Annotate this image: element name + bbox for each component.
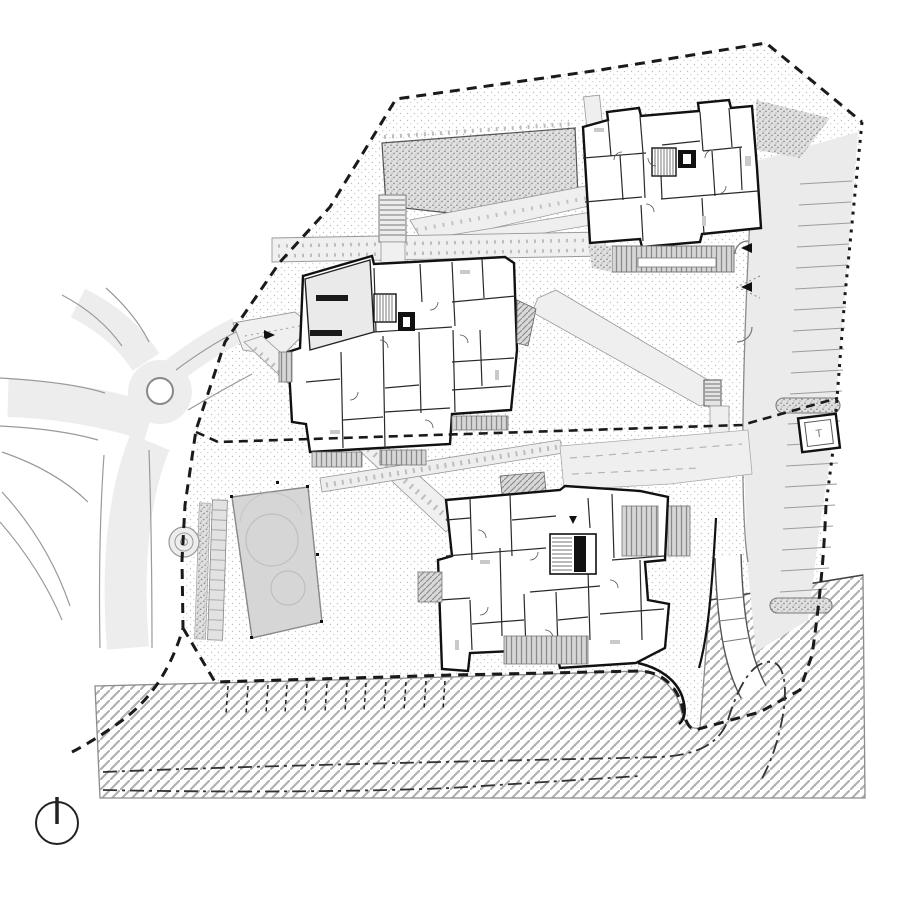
stair-core-middle: [374, 294, 396, 322]
balcony-south-ne: [622, 506, 658, 556]
roundabout-island: [147, 378, 173, 404]
garden-block-east: [668, 506, 690, 556]
common-room-table: [316, 295, 348, 301]
balcony-middle-west: [279, 352, 292, 382]
common-room-table: [310, 330, 342, 336]
elevator-middle-icon: [398, 312, 415, 331]
terrace-planter: [638, 258, 716, 267]
elevator-north-icon: [678, 150, 696, 168]
transformer-station: T: [798, 414, 840, 452]
road-arm-south: [126, 442, 150, 648]
road-arm-west: [8, 398, 150, 422]
stairs-north: [379, 195, 406, 268]
site-plan-drawing: T: [0, 0, 906, 907]
balcony-south-s: [504, 636, 588, 664]
site-plan-page: T: [0, 0, 906, 907]
parking-island: [770, 598, 832, 613]
stair-core-north: [652, 148, 676, 176]
building-south: [418, 472, 669, 671]
balcony-middle-south: [312, 452, 362, 467]
balcony-south-w: [418, 572, 442, 602]
balcony-middle-south: [380, 450, 426, 465]
stair-core-south: [550, 534, 596, 574]
balcony-middle-south: [452, 416, 508, 430]
north-arrow-icon: [36, 797, 78, 844]
building-north: [583, 100, 761, 272]
path-entry-north: [584, 95, 603, 125]
